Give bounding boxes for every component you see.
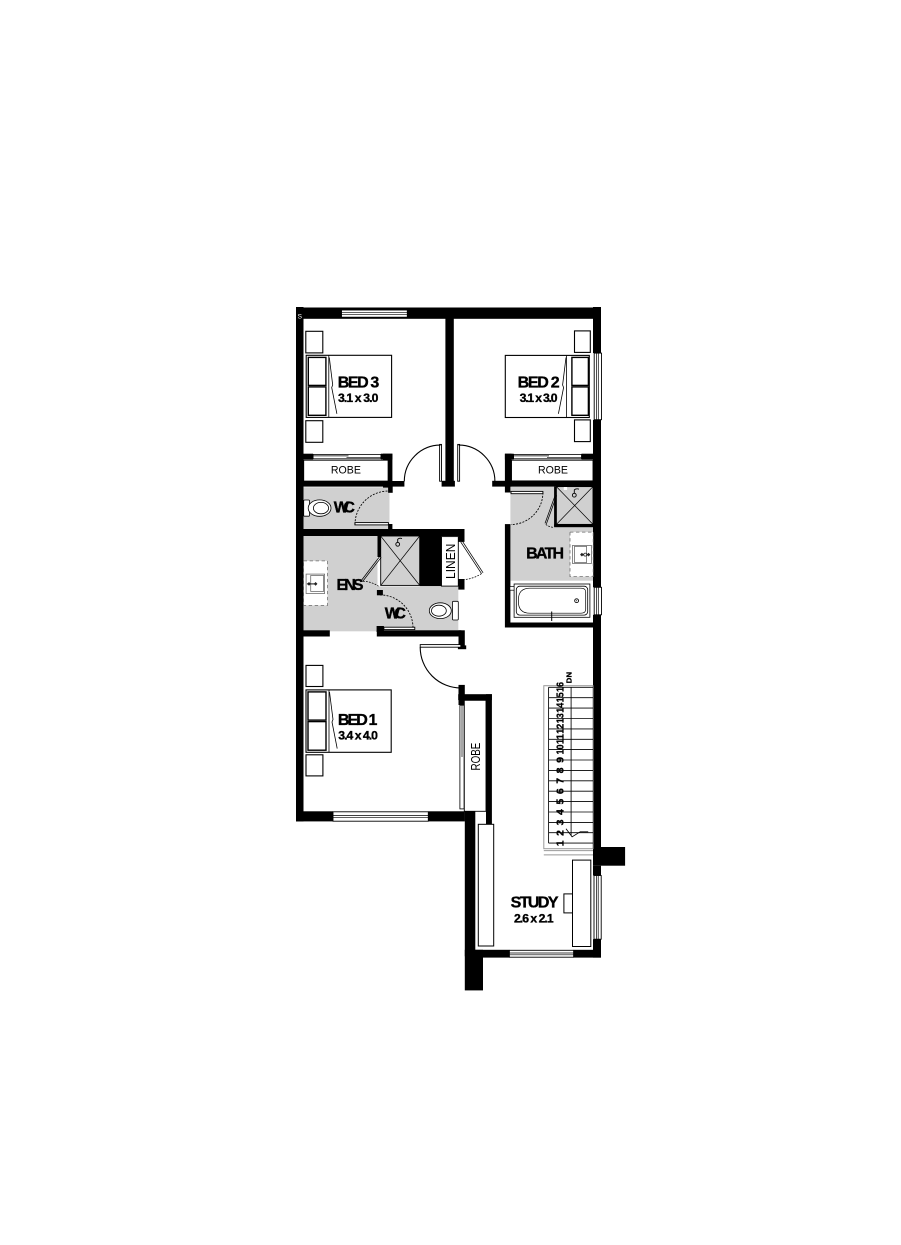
svg-text:3.1 x 3.0: 3.1 x 3.0: [338, 391, 379, 405]
svg-text:LINEN: LINEN: [444, 544, 458, 579]
svg-text:14: 14: [554, 703, 566, 713]
svg-text:7: 7: [554, 778, 566, 784]
svg-text:ENS: ENS: [336, 577, 363, 594]
svg-text:15: 15: [554, 692, 566, 702]
svg-text:12: 12: [554, 724, 566, 734]
svg-text:2: 2: [554, 830, 566, 836]
svg-text:13: 13: [554, 713, 566, 723]
svg-text:8: 8: [554, 767, 566, 773]
svg-text:6: 6: [554, 788, 566, 794]
svg-text:2.6 x 2.1: 2.6 x 2.1: [514, 911, 554, 925]
svg-text:3.1 x 3.0: 3.1 x 3.0: [520, 391, 558, 405]
svg-text:5: 5: [554, 799, 566, 805]
svg-text:WC: WC: [385, 605, 407, 622]
svg-text:ROBE: ROBE: [538, 465, 568, 477]
svg-text:STUDY: STUDY: [511, 894, 559, 911]
svg-text:BED 3: BED 3: [338, 375, 380, 392]
svg-text:BATH: BATH: [526, 546, 564, 563]
svg-text:ROBE: ROBE: [468, 743, 483, 771]
svg-text:3.4 x 4.0: 3.4 x 4.0: [338, 728, 378, 742]
svg-text:4: 4: [554, 809, 566, 815]
svg-text:3: 3: [554, 819, 566, 825]
svg-text:16: 16: [554, 682, 566, 692]
svg-text:S: S: [298, 314, 303, 321]
svg-text:WC: WC: [334, 500, 356, 517]
svg-text:ROBE: ROBE: [331, 465, 361, 477]
svg-text:10: 10: [554, 744, 566, 754]
svg-text:BED 2: BED 2: [518, 375, 560, 392]
svg-text:1: 1: [554, 840, 566, 846]
svg-text:BED 1: BED 1: [338, 712, 378, 729]
svg-text:11: 11: [554, 734, 566, 744]
svg-text:9: 9: [554, 757, 566, 763]
svg-text:DN: DN: [564, 672, 573, 684]
